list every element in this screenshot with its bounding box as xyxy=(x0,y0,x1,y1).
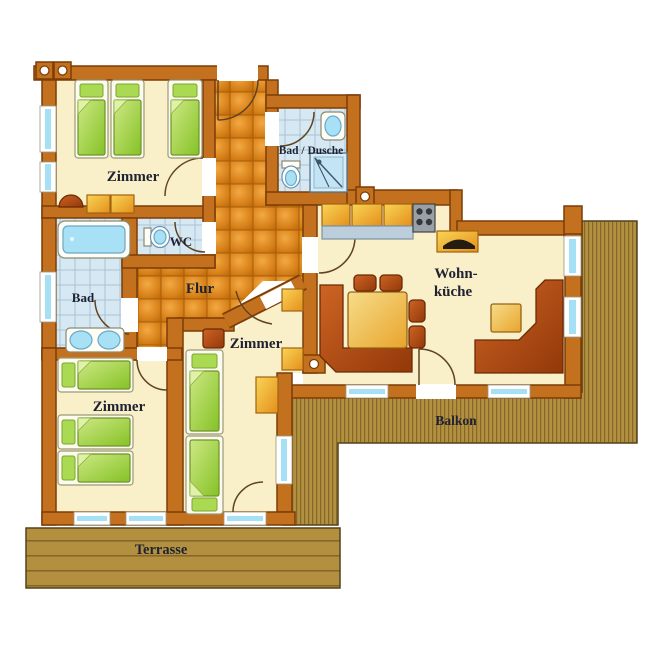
floor-plan: Zimmer Bad / Dusche WC Flur Bad Wohn- kü… xyxy=(0,0,660,660)
stool-icon xyxy=(203,329,224,348)
bed-icon xyxy=(75,80,108,158)
room-label-balkon: Balkon xyxy=(435,413,477,428)
post-dot-icon xyxy=(40,66,49,75)
window xyxy=(488,385,530,398)
dresser-icon xyxy=(87,195,110,213)
window xyxy=(564,236,581,276)
window xyxy=(40,272,56,322)
chair-icon xyxy=(409,300,425,322)
bed-icon xyxy=(168,80,202,158)
bed-icon xyxy=(186,350,223,434)
sink-icon xyxy=(321,112,345,140)
bed-icon xyxy=(111,80,144,158)
window xyxy=(126,512,166,525)
room-label-bad-dusche: Bad / Dusche xyxy=(279,145,344,157)
window xyxy=(564,297,581,337)
sink-counter xyxy=(322,226,413,239)
window xyxy=(346,385,388,398)
tv-cabinet xyxy=(437,231,478,252)
bed-icon xyxy=(186,436,223,514)
room-label-wohnkueche-1: Wohn- xyxy=(434,266,477,282)
shower-icon xyxy=(310,153,347,192)
room-label-flur: Flur xyxy=(186,281,215,297)
post-dot-icon xyxy=(58,66,67,75)
room-label-wohnkueche-2: küche xyxy=(434,284,473,300)
window xyxy=(224,512,266,525)
room-label-bad: Bad xyxy=(72,290,95,305)
post-dot-icon xyxy=(361,192,370,201)
balcony-door-opening xyxy=(416,384,456,399)
room-label-wc: WC xyxy=(170,234,192,249)
window xyxy=(40,106,56,152)
room-label-zimmer-top: Zimmer xyxy=(107,169,160,185)
toilet-icon xyxy=(144,227,170,248)
dining-table-icon xyxy=(348,292,407,348)
chair-icon xyxy=(380,275,402,291)
wardrobe-icon xyxy=(256,377,278,413)
wardrobe-icon xyxy=(282,348,303,370)
terrasse-deck xyxy=(26,528,340,588)
chair-icon xyxy=(409,326,425,348)
room-label-zimmer-middle: Zimmer xyxy=(230,336,283,352)
coffee-table-icon xyxy=(491,304,521,332)
window xyxy=(40,162,56,192)
window xyxy=(276,436,292,484)
stove-icon xyxy=(413,204,435,232)
bed-icon xyxy=(58,358,133,392)
room-label-zimmer-left: Zimmer xyxy=(93,399,146,415)
wardrobe-icon xyxy=(282,289,303,311)
double-sink-icon xyxy=(66,328,124,352)
chair-icon xyxy=(354,275,376,291)
dresser-icon xyxy=(111,195,134,213)
post-dot-icon xyxy=(310,360,319,369)
toilet-icon xyxy=(282,161,300,188)
entrance-door-opening xyxy=(217,64,258,81)
bathtub-icon xyxy=(58,221,130,258)
floor-plan-canvas: Zimmer Bad / Dusche WC Flur Bad Wohn- kü… xyxy=(0,0,660,660)
bed-icon xyxy=(58,415,133,449)
bed-icon xyxy=(58,451,133,485)
room-label-terrasse: Terrasse xyxy=(135,542,188,558)
window xyxy=(74,512,110,525)
